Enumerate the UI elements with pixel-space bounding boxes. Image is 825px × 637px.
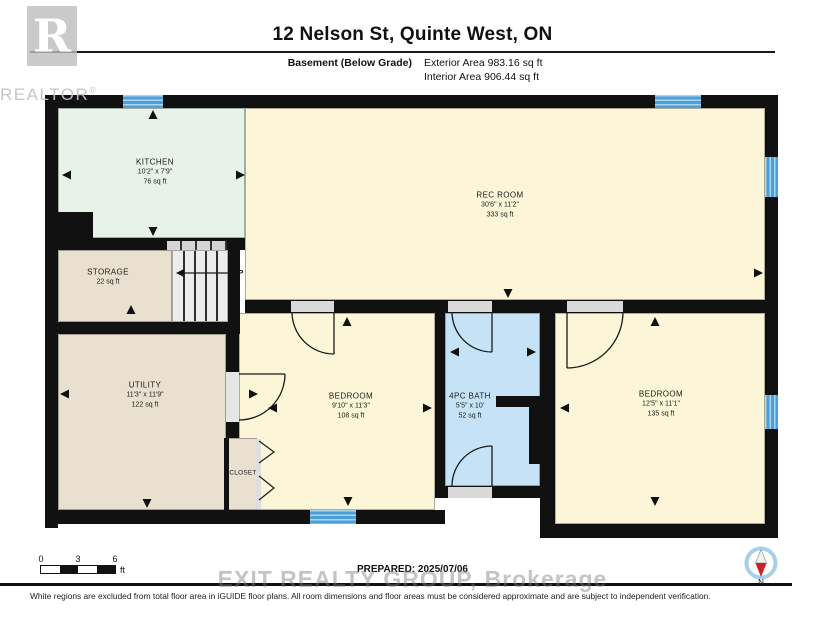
registered-mark: ® xyxy=(89,85,97,95)
realtor-text: REALTOR xyxy=(0,85,89,104)
label-rec-room: REC ROOM 30'6" x 11'2" 333 sq ft xyxy=(476,190,523,221)
label-kitchen: KITCHEN 10'2" x 7'9" 76 sq ft xyxy=(136,157,174,188)
label-utility: UTILITY 11'3" x 11'9" 122 sq ft xyxy=(126,380,163,411)
door-swing-arcs xyxy=(239,312,623,486)
compass-north-label: N xyxy=(749,578,773,587)
brokerage-watermark: EXIT REALTY GROUP, Brokerage xyxy=(0,566,825,593)
closet-bifold-icons xyxy=(259,441,274,500)
label-storage: STORAGE 22 sq ft xyxy=(87,267,129,288)
plan-annotations xyxy=(0,0,825,637)
realtor-logo-icon: R xyxy=(27,6,77,66)
realtor-wordmark: REALTOR® xyxy=(0,85,120,105)
label-bath: 4PC BATH 5'5" x 10' 52 sq ft xyxy=(449,391,491,422)
stairs-up-label: ◄UP xyxy=(227,268,243,277)
label-bedroom-middle: BEDROOM 9'10" x 11'3" 108 sq ft xyxy=(329,391,373,422)
stair-treads xyxy=(184,251,217,321)
label-closet: CLOSET xyxy=(229,470,256,477)
label-bedroom-right: BEDROOM 12'5" x 11'1" 135 sq ft xyxy=(639,389,683,420)
floorplan-page: 12 Nelson St, Quinte West, ON Basement (… xyxy=(0,0,825,637)
